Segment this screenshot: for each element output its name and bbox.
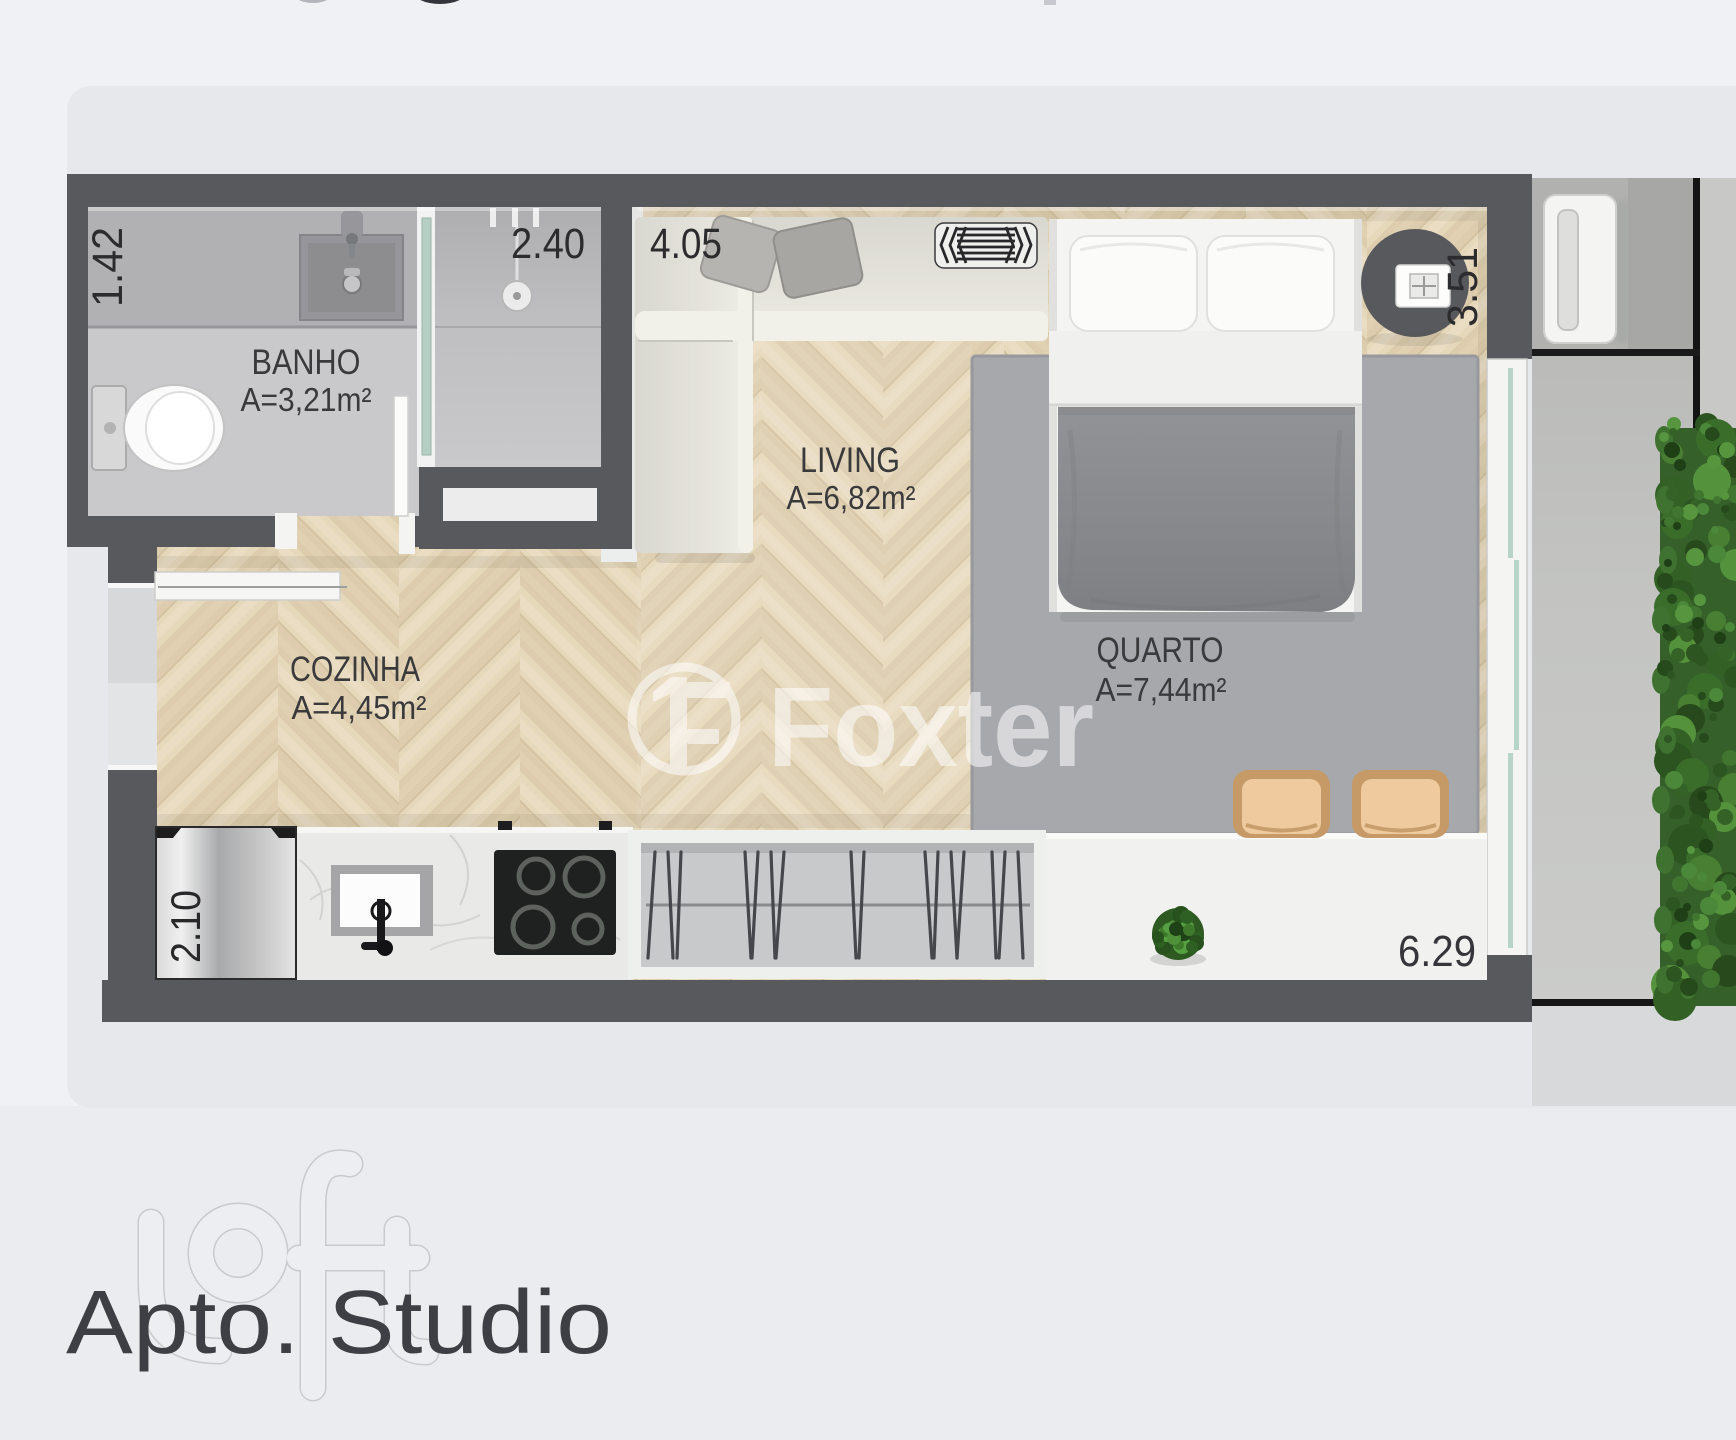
svg-text:A=6,82m²: A=6,82m²	[787, 479, 916, 516]
svg-text:3.51: 3.51	[1439, 247, 1487, 327]
svg-text:A=4,45m²: A=4,45m²	[292, 689, 427, 726]
svg-text:LIVING: LIVING	[800, 441, 900, 480]
svg-text:COZINHA: COZINHA	[290, 650, 421, 689]
svg-text:Apto. Studio: Apto. Studio	[66, 1273, 612, 1373]
svg-text:A=7,44m²: A=7,44m²	[1096, 671, 1227, 708]
svg-text:2.40: 2.40	[511, 220, 585, 268]
svg-text:QUARTO: QUARTO	[1097, 631, 1224, 670]
svg-text:6.29: 6.29	[1398, 927, 1476, 976]
svg-text:1.42: 1.42	[84, 227, 132, 307]
svg-text:Foxter: Foxter	[768, 664, 1094, 790]
svg-text:A=3,21m²: A=3,21m²	[241, 381, 372, 418]
svg-text:4.05: 4.05	[650, 220, 722, 268]
svg-text:2.10: 2.10	[162, 890, 209, 963]
svg-text:BANHO: BANHO	[252, 343, 361, 382]
